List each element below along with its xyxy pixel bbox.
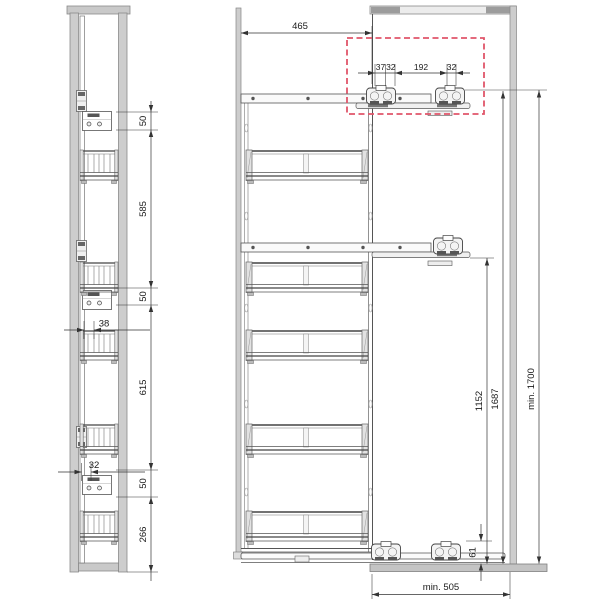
dim-lower-bracket-offset: 50 (138, 478, 149, 489)
dim-slide-group: 37 32 192 32 (358, 62, 470, 86)
dim-extension-465: 465 (241, 21, 372, 84)
dim-top-runner-1687: 1687 (490, 91, 505, 564)
dim-lower-span: 615 (138, 380, 149, 396)
dim-min-depth: min. 505 (423, 582, 459, 593)
dim-bracket-width: 32 (89, 460, 100, 471)
dim-extension: 465 (292, 21, 308, 32)
runner-mount-box (83, 476, 112, 495)
mid-runner-assembly (241, 236, 470, 266)
frame-front-edge (236, 8, 241, 555)
side-view: 465 37 32 192 32 1152 1687 min. 1700 (234, 6, 548, 599)
rail-piece (428, 261, 452, 266)
wire-basket-side (246, 330, 368, 364)
dim-mid-runner-1152: 1152 (470, 258, 494, 564)
slide-clip-bracket (432, 542, 461, 561)
technical-drawing-page: 50 585 50 615 50 266 38 32 (0, 0, 600, 600)
top-panel-block-rear (486, 7, 512, 13)
dim-top-runner-height: 1687 (490, 388, 501, 409)
runner-bar (241, 94, 431, 103)
dim-floor-clearance: 61 (468, 547, 479, 558)
wire-basket-side (246, 511, 368, 545)
wire-basket-side (246, 424, 368, 458)
wire-basket (80, 330, 118, 364)
drawing-svg: 50 585 50 615 50 266 38 32 (0, 0, 600, 600)
dim-min-depth-505: min. 505 (372, 572, 510, 599)
slide-clip-bracket (367, 86, 396, 105)
front-view: 50 585 50 615 50 266 38 32 (58, 6, 158, 581)
runner-bar (241, 243, 431, 252)
dim-slide-offset: 37 (376, 62, 386, 72)
dim-min-height: min. 1700 (526, 368, 537, 410)
right-side-panel (119, 13, 128, 572)
wire-basket (80, 511, 118, 545)
dim-upper-span: 585 (138, 201, 149, 217)
bottom-runner-assembly (241, 542, 505, 563)
dim-mid-bracket-offset: 50 (138, 291, 149, 302)
dim-top-bracket-offset: 50 (138, 116, 149, 127)
wall-bracket (77, 241, 87, 262)
wire-basket-side (246, 262, 368, 296)
dim-mid-runner-height: 1152 (474, 391, 485, 411)
dim-slide-spacing: 192 (414, 62, 428, 72)
slide-clip-bracket (372, 542, 401, 561)
dim-bottom-span: 266 (138, 527, 149, 543)
dim-min-height-1700: min. 1700 (526, 90, 541, 564)
slide-clip-bracket (436, 86, 465, 105)
pullout-frame (234, 8, 373, 560)
slide-clip-bracket (434, 236, 463, 255)
top-runner-assembly (241, 86, 470, 116)
dim-slide-width-front: 32 (386, 62, 396, 72)
top-panel-block-front (371, 7, 400, 13)
dim-slide-width-rear: 32 (447, 62, 457, 72)
wire-basket (80, 150, 118, 184)
bottom-panel (79, 563, 119, 571)
wire-basket-side (246, 150, 368, 184)
dim-floor-clearance-61: 61 (466, 524, 492, 581)
runner-mount-box (83, 291, 112, 310)
dim-frame-inset: 38 (99, 319, 110, 330)
wall-bracket (77, 91, 87, 112)
floor-rail (370, 564, 547, 572)
rail-tab (295, 556, 309, 562)
runner-mount-box (83, 112, 112, 131)
